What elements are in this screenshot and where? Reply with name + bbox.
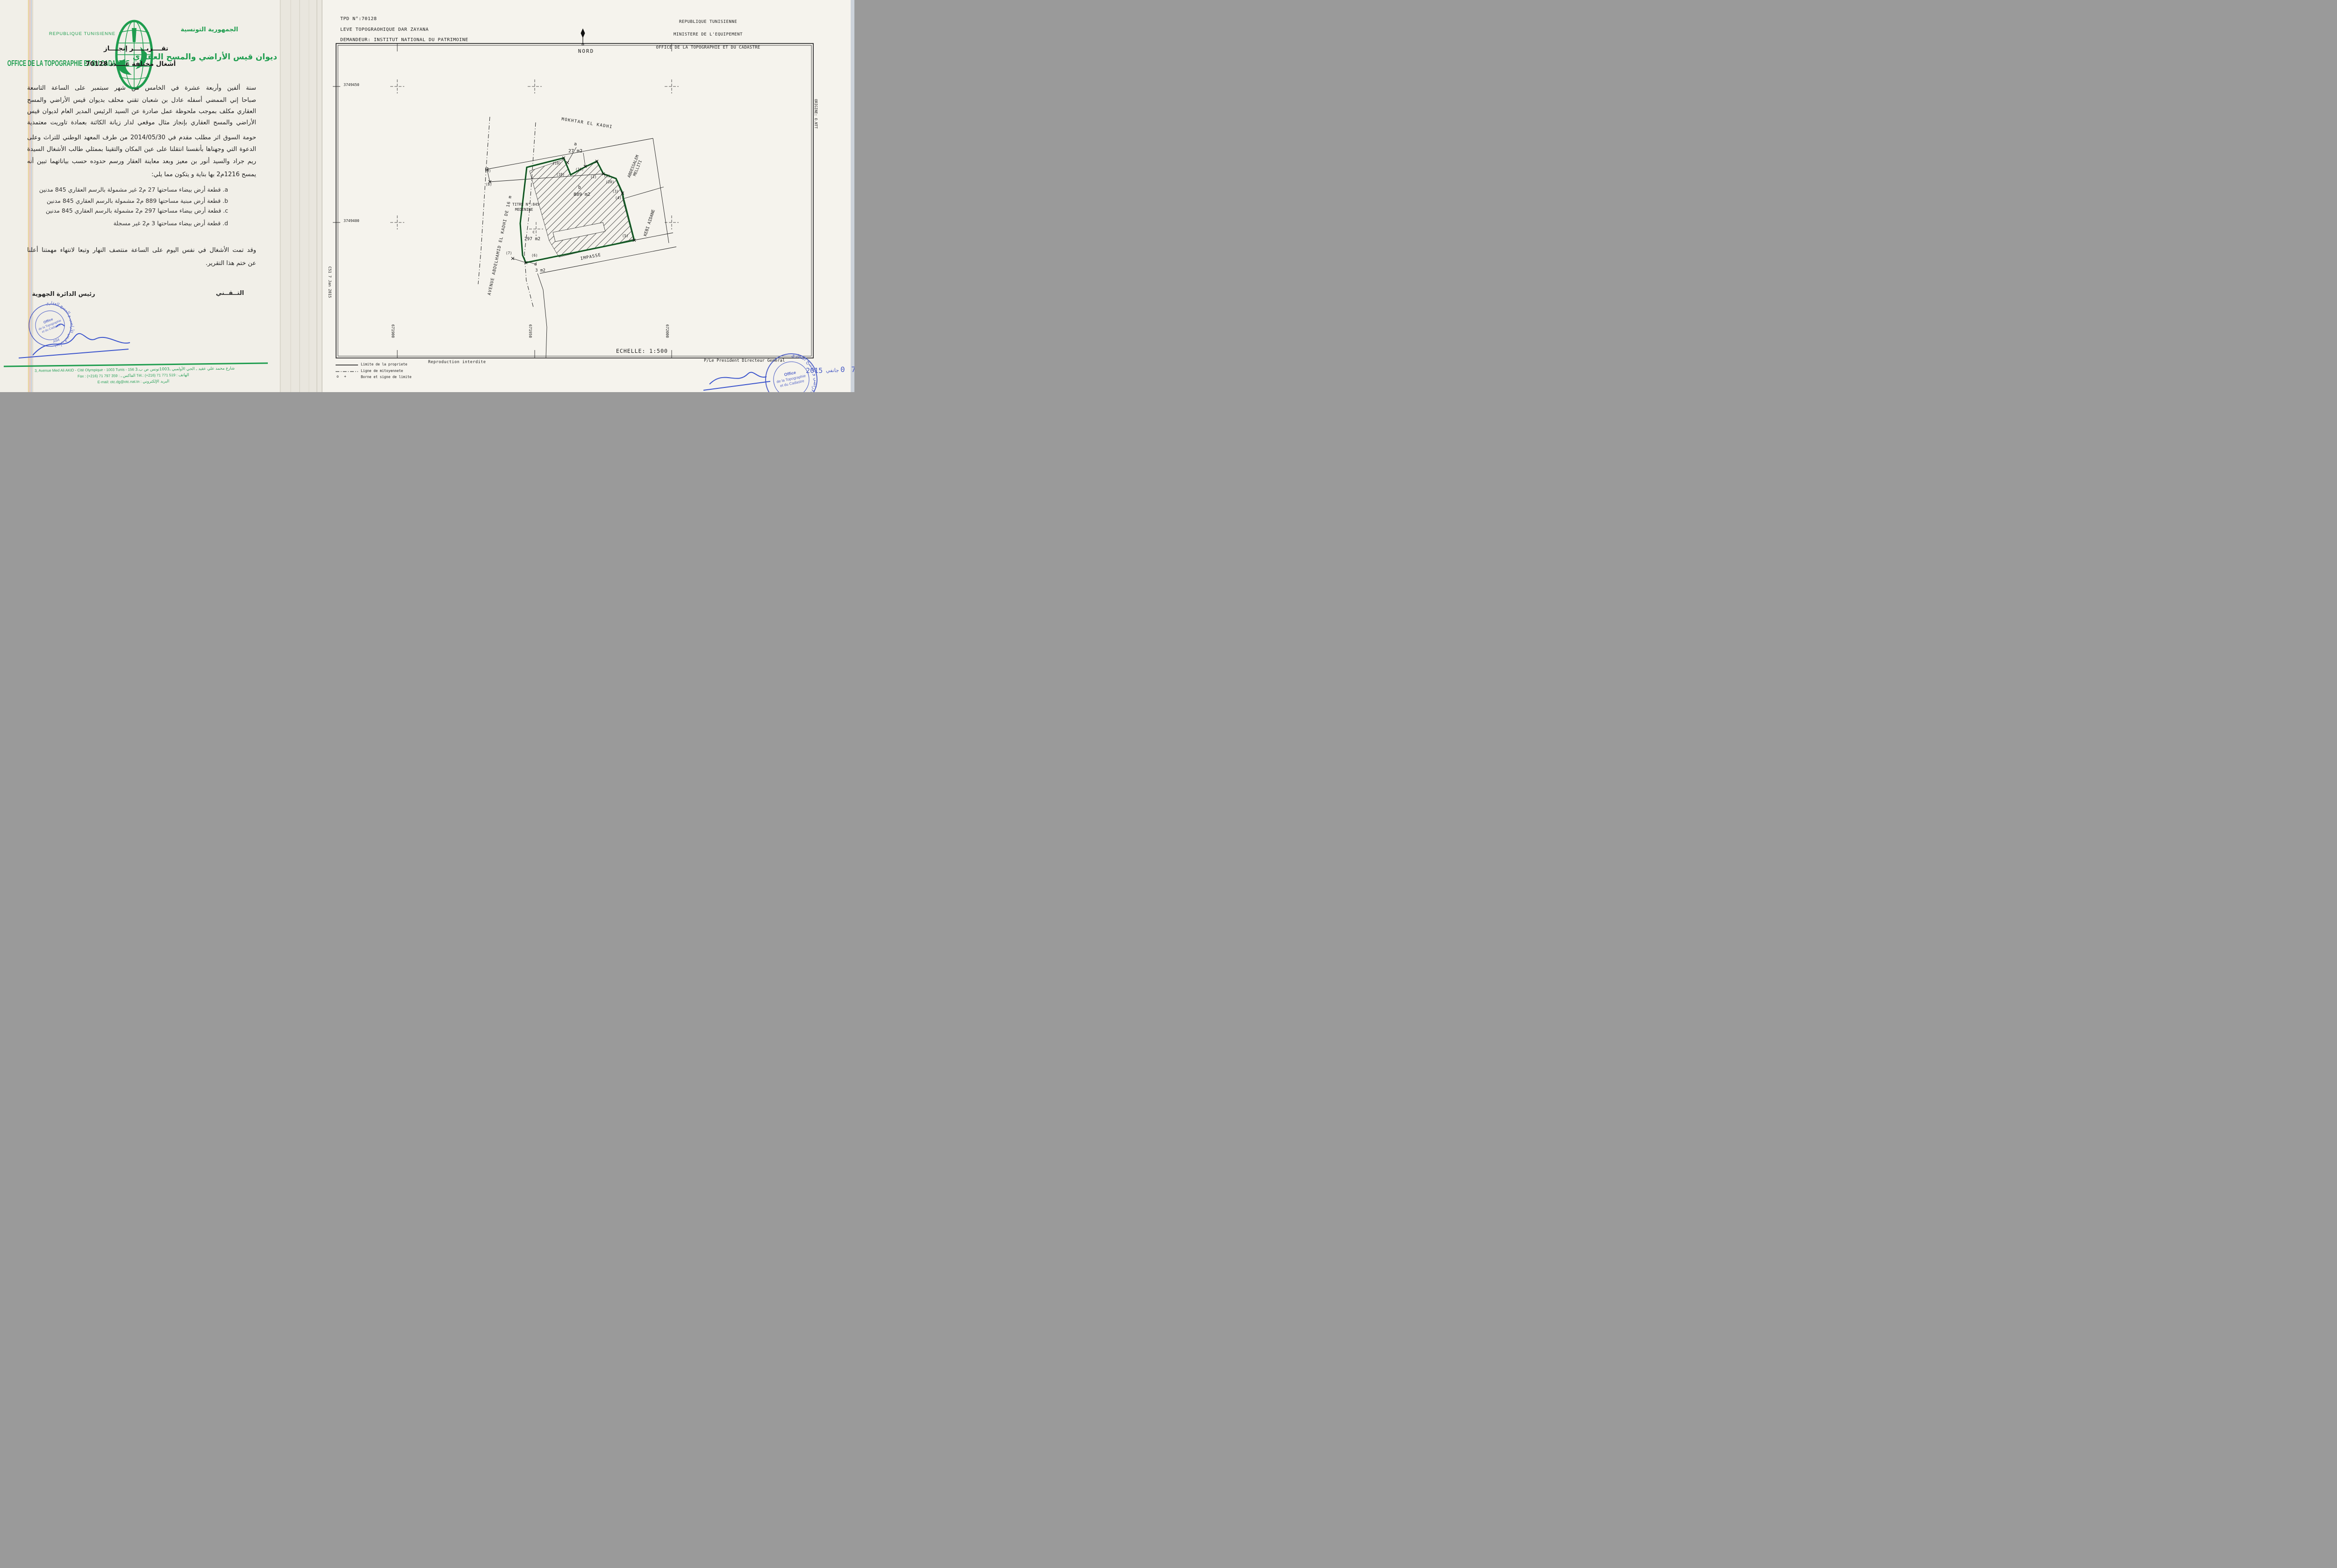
legend-samples (336, 365, 358, 372)
report-title-line2: أشغال مختلفة عــــدد 70128 (95, 60, 176, 68)
left-signature (19, 324, 130, 358)
signature-role-chief: رئيس الدائرة الجهوية (28, 291, 99, 298)
vertex-label-8: (8) (486, 182, 492, 186)
northing-label-3749400: 3749400 (344, 219, 359, 223)
north-label: NORD (571, 48, 601, 54)
northing-label-3749450: 3749450 (344, 83, 359, 87)
legend-mitoyennete: Ligne de mitoyennete (361, 369, 403, 373)
vertex-label-4: (4) (615, 196, 622, 200)
vertex-label-1: (1) (590, 175, 597, 179)
parcel-d-area: 3 m2 (532, 268, 549, 273)
reproduction-note: Reproduction interdite (428, 360, 486, 365)
north-arrow-icon (581, 29, 585, 45)
plan-leve-title: LEVE TOPOGRAOHIQUE DAR ZAYANA (340, 27, 429, 32)
body-line: الأراضي والمسح العقاري بإنجاز مثال موقعي… (27, 119, 256, 126)
body-line: العقاري مكلف بموجب ملحوظة عمل صادرة عن ا… (27, 108, 256, 115)
legend-borne: Borne et signe de limite (361, 375, 411, 379)
body-line: الدعوة التي وجهناها بأنفسنا انتقلنا على … (27, 146, 256, 153)
letterhead-republic-fr: REPUBLIQUE TUNISIENNE (33, 31, 132, 36)
vertex-label-9: (9) (485, 169, 491, 173)
hatched-built-area (530, 159, 633, 257)
parcel-d-label: d (534, 262, 537, 267)
closing-line2: عن ختم هذا التقرير. (27, 260, 256, 267)
footer-email-fr: E-mail: otc.dg@otc.nat.tn : (98, 379, 142, 384)
date-stamp-year: 2015 (806, 366, 823, 375)
scanned-survey-report-and-plan: ديوان قيس الأراضي و المسح العقاري Office… (0, 0, 854, 392)
footer-fax-ar: الفاكس (123, 373, 136, 378)
parcel-b-area: 889 m2 (570, 192, 594, 197)
plan-tpd-number: TPD N°:70128 (340, 16, 377, 21)
parcel-item-c: c. قطعة أرض بيضاء مساحتها 297 م2 مشمولة … (46, 207, 228, 214)
plan-demandeur: DEMANDEUR: INSTITUT NATIONAL DU PATRIMOI… (340, 37, 468, 43)
vertex-label-19: (19) (552, 161, 561, 165)
signature-role-technician: التــقــني (210, 290, 250, 297)
parcel-c-label: c (532, 230, 535, 235)
date-stamp-day: 0 7 (840, 365, 854, 374)
plan-org-line3: OFFICE DE LA TOPOGRAPHIE ET DU CADASTRE (649, 45, 767, 50)
scale-label: ECHELLE: 1:500 (616, 348, 668, 354)
vertex-label-3: (3) (612, 189, 619, 193)
parcel-c-area: 297 m2 (520, 236, 545, 242)
easting-label-671900: 671900 (391, 324, 395, 338)
footer-tel-ar: الهاتف (179, 373, 189, 378)
footer-email-ar: البريد الإلكتروني (143, 379, 169, 384)
titre-commune: MEDENINE (515, 208, 533, 212)
vertex-label-2: (2) (604, 174, 610, 178)
parcel-a-area: 27 m2 (568, 149, 582, 154)
footer-tel-fr: Tél.: (+216) 71 771 519 : (136, 373, 178, 378)
easting-label-671950: 671950 (528, 324, 532, 338)
body-line: يمسح 1216م2 بها بناية و يتكون مما يلي: (27, 171, 256, 178)
footer-sep: ـ (121, 373, 122, 378)
body-line: سنة ألفين وأربعة عشرة في الخامس من شهر س… (27, 85, 256, 92)
plan-org-line1: REPUBLIQUE TUNISIENNE (654, 20, 762, 24)
scan-right-edge (851, 0, 854, 392)
vertex-label-20: (20) (606, 180, 614, 184)
legend-borne-o-symbol: o (337, 374, 339, 379)
parcel-item-a: a. قطعة أرض بيضاء مساحتها 27 م2 غير مشمو… (39, 186, 228, 193)
titre-number: TITRE N°:845 (512, 202, 539, 207)
date-stamp-month: جانفي (826, 367, 839, 373)
body-line: ريم جراد والسيد أنور بن معيز وبعد معاينة… (27, 158, 256, 165)
legend-limite: Limite de la propriete (361, 362, 407, 366)
vertex-label-18: (18) (556, 172, 565, 177)
footer-address-fr: 3, Avenue Med Ali AKID - Cité Olympique … (35, 367, 134, 373)
parcel-item-d: d. قطعة أرض بيضاء مساحتها 3 م2 غير مسجلة (114, 220, 228, 227)
right-signature (703, 372, 770, 390)
parcel-item-b: b. قطعة أرض مبنية مساحتها 889 م2 مشمولة … (47, 197, 228, 204)
parcel-b-label: b (578, 185, 581, 190)
easting-label-672000: 672000 (665, 324, 669, 338)
vertex-label-16: (16) (575, 167, 584, 172)
vertex-label-5: (5) (622, 234, 629, 238)
vertex-label-6: (6) (531, 253, 538, 258)
report-title-line1: تقــــريــــــر إنجــــاز (98, 45, 174, 52)
vertex-label-7: (7) (506, 251, 512, 255)
body-line: حومة السوق اثر مطلب مقدم في 2014/05/30 م… (27, 134, 256, 141)
legend-borne-plus-symbol: + (344, 374, 346, 379)
president-signature-title: P/Le President Directeur General (704, 358, 785, 363)
parcel-a-label: a (574, 142, 577, 147)
letterhead-republic-ar: الجمهورية التونسية (177, 26, 242, 33)
page-fold-lines (280, 0, 322, 392)
origine-label: ORIGINE: O.NTT (814, 99, 818, 129)
filecode-label: C51 7 Jan 2015 (328, 266, 332, 298)
closing-line1: وقد تمت الأشغال في نفس اليوم على الساعة … (27, 247, 256, 254)
footer-fax-fr: Fax : (+216) 71 797 359 : (78, 374, 120, 379)
plan-org-line2: MINISTERE DE L'EQUIPEMENT (654, 32, 762, 37)
body-line: صباحا إني الممضي أسفله عادل بن شعبان تقن… (27, 97, 256, 104)
